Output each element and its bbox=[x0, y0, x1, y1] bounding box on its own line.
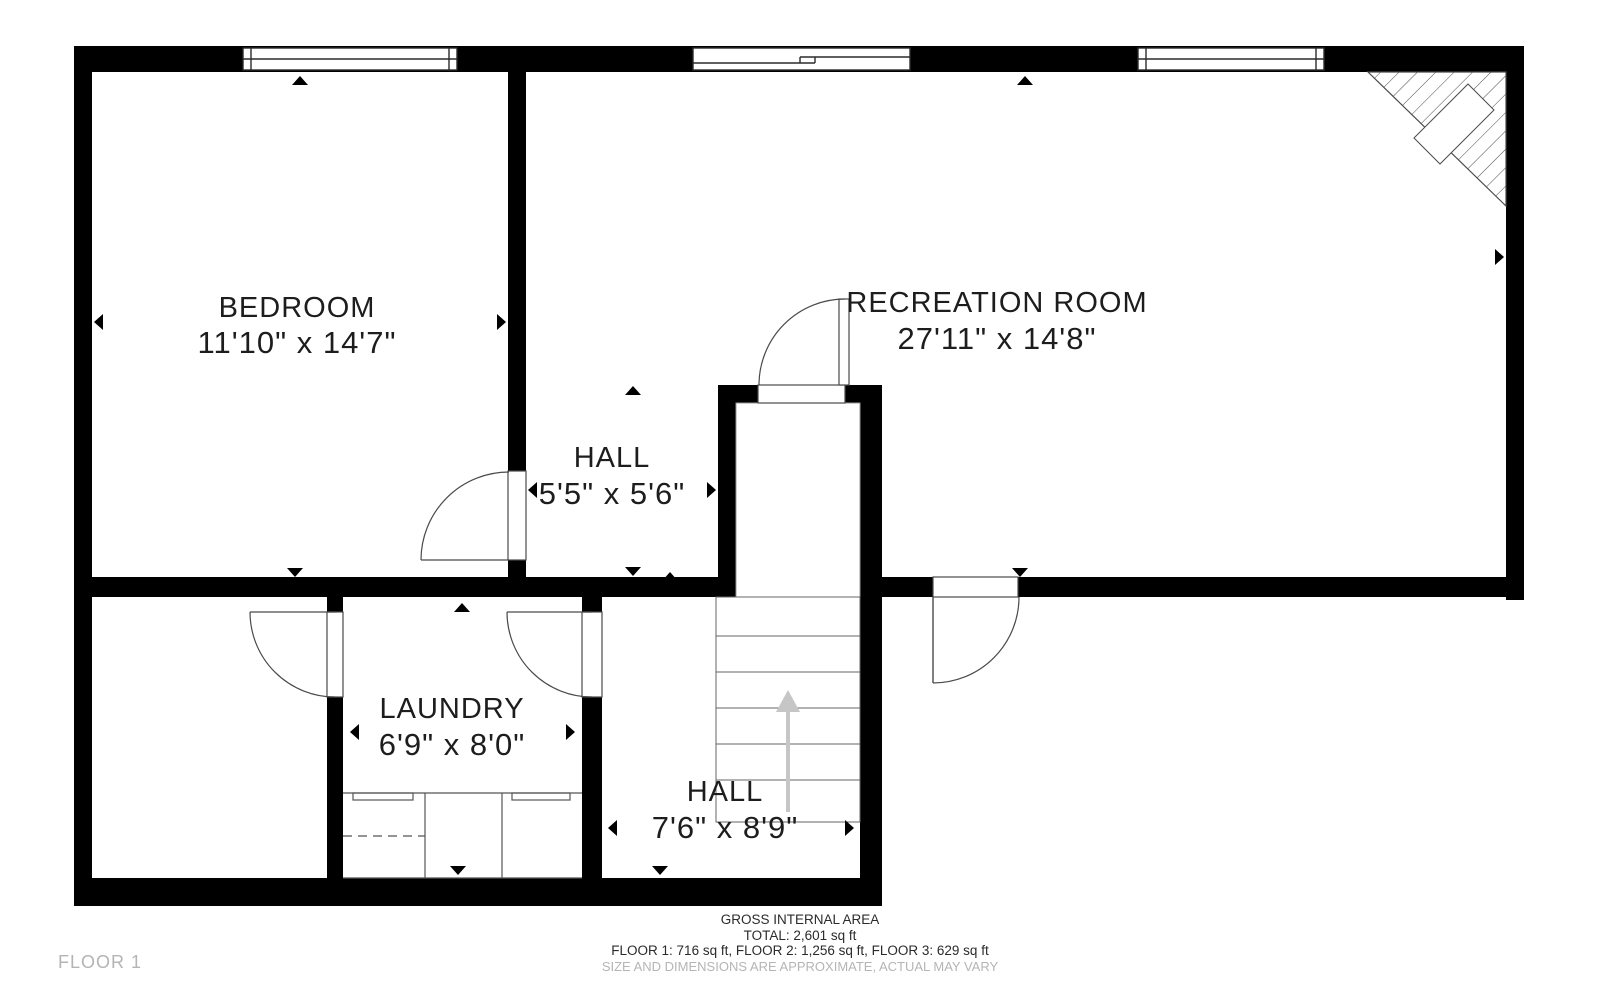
arrow-left-icon bbox=[94, 314, 103, 330]
arrow-up-icon bbox=[292, 76, 308, 85]
wall-stair-left bbox=[718, 385, 736, 597]
floor-areas: FLOOR 1: 716 sq ft, FLOOR 2: 1,256 sq ft… bbox=[0, 943, 1600, 959]
wall-mid-left bbox=[74, 577, 736, 597]
arrow-down-icon bbox=[1012, 568, 1028, 577]
arrow-up-icon bbox=[1017, 76, 1033, 85]
upper-hall-label: HALL bbox=[574, 442, 651, 474]
staircase bbox=[716, 403, 860, 822]
wall-stair-right bbox=[860, 385, 882, 906]
arrow-down-icon bbox=[287, 568, 303, 577]
footer-area-summary: GROSS INTERNAL AREA TOTAL: 2,601 sq ft F… bbox=[0, 912, 1600, 974]
arrow-down-icon bbox=[625, 567, 641, 576]
recreation-sliding-window bbox=[693, 48, 910, 70]
total-area: TOTAL: 2,601 sq ft bbox=[0, 928, 1600, 944]
wall-right bbox=[1506, 46, 1524, 600]
laundry-dims: 6'9" x 8'0" bbox=[379, 727, 526, 762]
laundry-label: LAUNDRY bbox=[379, 693, 524, 725]
laundry-door bbox=[507, 612, 602, 697]
lower-hall-dims: 7'6" x 8'9" bbox=[652, 810, 799, 845]
floor-number-label: FLOOR 1 bbox=[58, 952, 142, 973]
recreation-label: RECREATION ROOM bbox=[846, 287, 1147, 319]
recreation-dims: 27'11" x 14'8" bbox=[898, 321, 1097, 356]
recreation-exterior-door bbox=[933, 577, 1019, 683]
windows bbox=[243, 48, 1324, 70]
arrow-up-icon bbox=[662, 572, 678, 581]
arrow-left-icon bbox=[608, 820, 617, 836]
stairwell-door bbox=[758, 299, 849, 403]
stair-landing bbox=[736, 403, 860, 597]
arrow-right-icon bbox=[707, 482, 716, 498]
disclaimer: SIZE AND DIMENSIONS ARE APPROXIMATE, ACT… bbox=[0, 959, 1600, 975]
arrow-left-icon bbox=[350, 724, 359, 740]
recreation-window bbox=[1138, 48, 1324, 70]
lower-hall-label: HALL bbox=[687, 776, 764, 808]
arrow-up-icon bbox=[625, 386, 641, 395]
wall-bottom bbox=[74, 878, 882, 906]
arrow-down-icon bbox=[652, 866, 668, 875]
arrow-up-icon bbox=[454, 603, 470, 612]
laundry-appliances bbox=[343, 793, 582, 878]
floorplan-page: { "plan": { "floor_label": "FLOOR 1", "r… bbox=[0, 0, 1600, 999]
wall-left bbox=[74, 46, 92, 906]
bedroom-door bbox=[421, 471, 526, 560]
hatched-corner bbox=[1368, 72, 1506, 206]
gross-internal-area-title: GROSS INTERNAL AREA bbox=[0, 912, 1600, 928]
upper-hall-dims: 5'5" x 5'6" bbox=[539, 476, 686, 511]
arrow-down-icon bbox=[450, 866, 466, 875]
arrow-left-icon bbox=[528, 482, 537, 498]
arrow-right-icon bbox=[1495, 249, 1504, 265]
bedroom-window bbox=[243, 48, 457, 70]
appliance-dryer bbox=[512, 793, 570, 800]
floor-plan-drawing: BEDROOM 11'10" x 14'7" RECREATION ROOM 2… bbox=[0, 0, 1600, 999]
bottom-left-room-door bbox=[250, 612, 343, 697]
arrow-right-icon bbox=[497, 314, 506, 330]
bedroom-dims: 11'10" x 14'7" bbox=[198, 325, 397, 360]
arrow-right-icon bbox=[566, 724, 575, 740]
bedroom-label: BEDROOM bbox=[219, 292, 376, 324]
appliance-washer bbox=[353, 793, 413, 800]
